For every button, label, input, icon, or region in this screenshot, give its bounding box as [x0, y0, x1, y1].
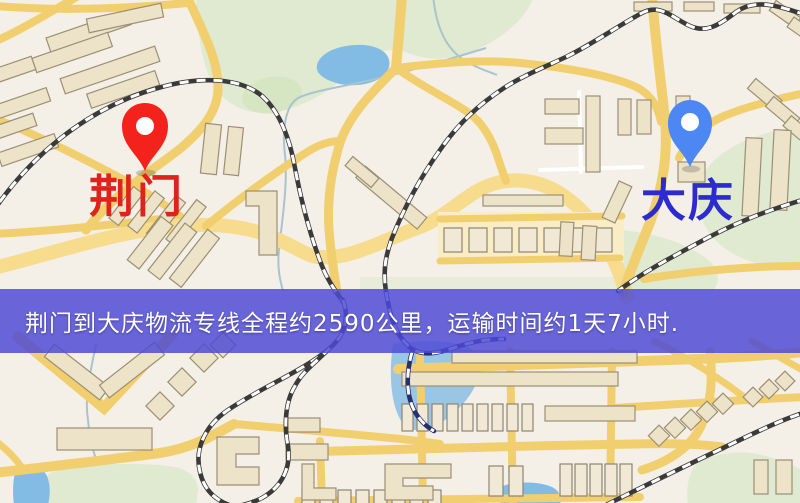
- house-row-a: [402, 404, 533, 431]
- origin-city-label: 荆门: [89, 174, 185, 219]
- route-info-banner: 荆门到大庆物流专线全程约2590公里，运输时间约1天7小时.: [0, 289, 800, 353]
- route-info-text: 荆门到大庆物流专线全程约2590公里，运输时间约1天7小时.: [25, 304, 679, 338]
- logistics-route-map: 荆门 大庆 荆门到大庆物流专线全程约2590公里，运输时间约1天7小时.: [0, 0, 800, 503]
- destination-city-label: 大庆: [641, 178, 735, 223]
- map-canvas: [0, 0, 800, 503]
- house-row-c: [560, 464, 632, 496]
